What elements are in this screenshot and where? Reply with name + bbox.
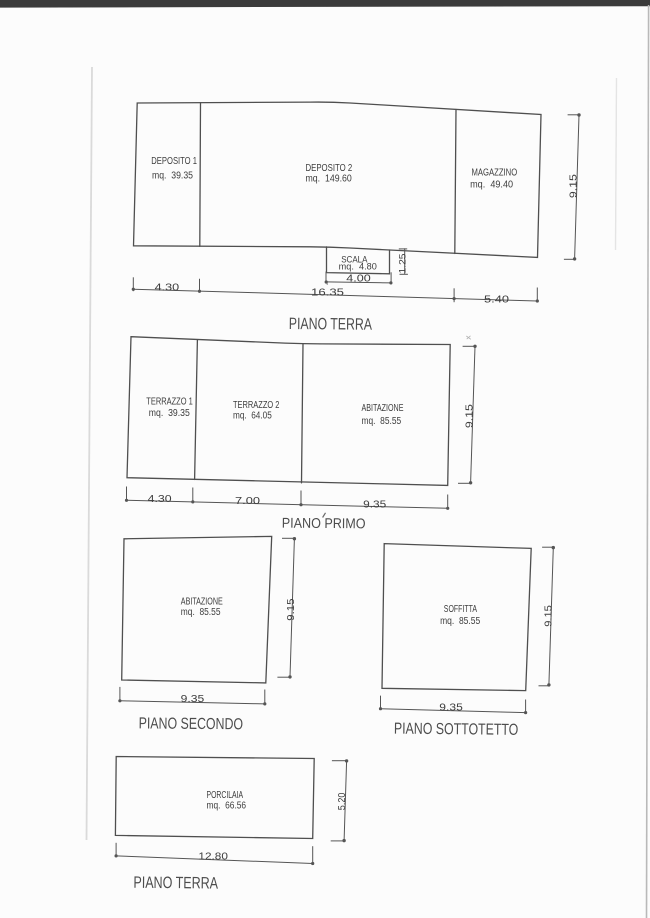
svg-text:SOFFITTA: SOFFITTA — [444, 604, 477, 615]
svg-text:mq. 149.60: mq. 149.60 — [306, 174, 353, 185]
svg-text:ABITAZIONE: ABITAZIONE — [362, 403, 404, 414]
svg-text:mq. 85.55: mq. 85.55 — [181, 607, 221, 618]
svg-text:mq. 66.56: mq. 66.56 — [207, 800, 247, 811]
svg-text:12.80: 12.80 — [198, 851, 228, 862]
svg-text:9.15: 9.15 — [543, 605, 555, 627]
svg-text:PORCILAIA: PORCILAIA — [207, 790, 244, 801]
svg-text:5.40: 5.40 — [484, 295, 510, 306]
svg-text:PIANO SECONDO: PIANO SECONDO — [139, 715, 244, 733]
svg-text:mq. 49.40: mq. 49.40 — [470, 180, 513, 191]
svg-text:4.30: 4.30 — [148, 494, 172, 505]
svg-text:mq. 39.35: mq. 39.35 — [152, 171, 193, 182]
svg-text:4.30: 4.30 — [155, 283, 180, 294]
svg-text:PIANO TERRA: PIANO TERRA — [289, 315, 372, 334]
svg-text:7.00: 7.00 — [235, 496, 261, 507]
svg-text:MAGAZZINO: MAGAZZINO — [472, 168, 518, 179]
svg-text:5.20: 5.20 — [337, 792, 348, 810]
svg-text:9.15: 9.15 — [464, 404, 476, 428]
svg-text:1.25: 1.25 — [398, 254, 408, 274]
svg-text:16.35: 16.35 — [311, 287, 345, 298]
svg-text:9.35: 9.35 — [439, 703, 463, 714]
svg-text:4.00: 4.00 — [346, 274, 371, 285]
svg-text:mq. 85.55: mq. 85.55 — [440, 616, 480, 627]
svg-text:9.15: 9.15 — [568, 174, 580, 198]
svg-text:ABITAZIONE: ABITAZIONE — [181, 596, 223, 607]
svg-text:PIANO TERRA: PIANO TERRA — [133, 874, 218, 893]
svg-text:9.15: 9.15 — [285, 598, 297, 620]
svg-text:DEPOSITO 1: DEPOSITO 1 — [151, 156, 197, 167]
svg-text:PIANO PRIMO: PIANO PRIMO — [282, 516, 366, 533]
svg-text:9.35: 9.35 — [181, 694, 205, 705]
svg-text:9.35: 9.35 — [363, 499, 387, 510]
svg-text:TERRAZZO 2: TERRAZZO 2 — [233, 400, 280, 411]
svg-text:mq. 39.35: mq. 39.35 — [149, 408, 190, 419]
svg-text:DEPOSITO 2: DEPOSITO 2 — [306, 163, 353, 174]
svg-text:mq. 85.55: mq. 85.55 — [362, 416, 402, 427]
svg-text:mq. 4.80: mq. 4.80 — [339, 262, 377, 272]
svg-text:mq. 64.05: mq. 64.05 — [233, 411, 272, 422]
svg-text:TERRAZZO 1: TERRAZZO 1 — [146, 396, 193, 407]
svg-text:PIANO SOTTOTETTO: PIANO SOTTOTETTO — [394, 721, 519, 739]
